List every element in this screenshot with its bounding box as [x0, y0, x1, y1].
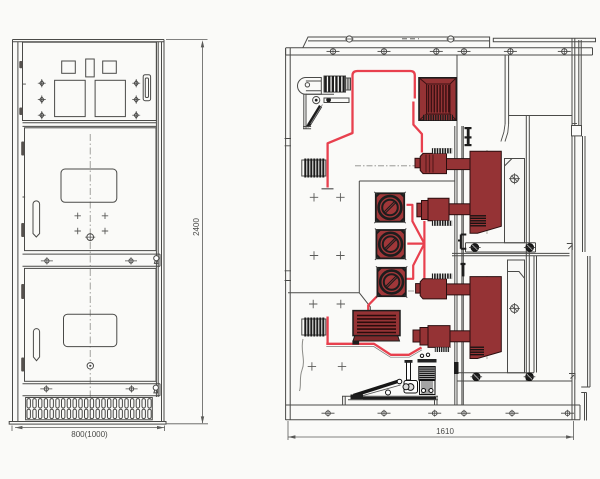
svg-text:2400: 2400 — [192, 218, 201, 236]
svg-text:800(1000): 800(1000) — [71, 430, 108, 439]
svg-text:1610: 1610 — [436, 427, 454, 436]
